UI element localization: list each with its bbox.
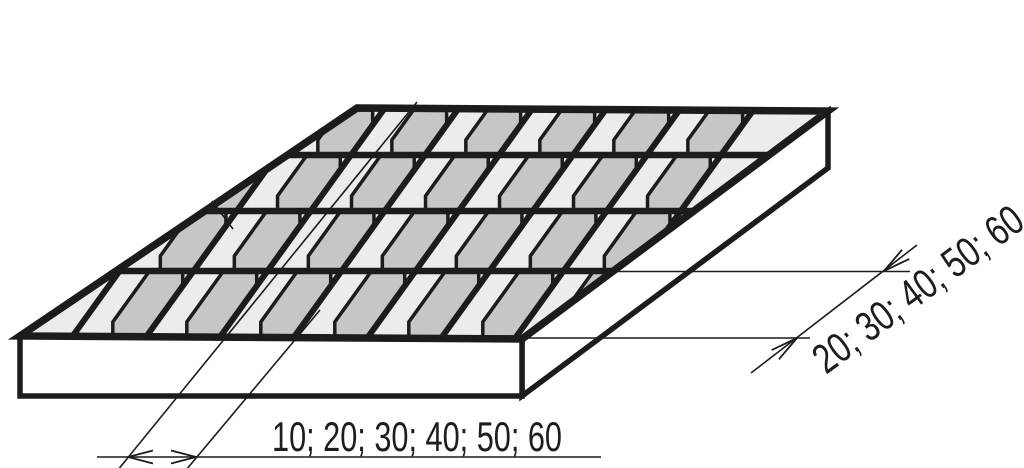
bottom-dimension-label: 10; 20; 30; 40; 50; 60: [272, 413, 562, 460]
grating-diagram: 10; 20; 30; 40; 50; 60 20; 30; 40; 50; 6…: [0, 0, 1024, 468]
grating-svg: 10; 20; 30; 40; 50; 60 20; 30; 40; 50; 6…: [0, 0, 1024, 468]
bar-side-face: [244, 110, 299, 155]
plate-front-face: [20, 336, 522, 396]
dimension-arrow-lower: [772, 338, 797, 359]
side-dimension-label: 20; 30; 40; 50; 60: [803, 196, 1024, 382]
